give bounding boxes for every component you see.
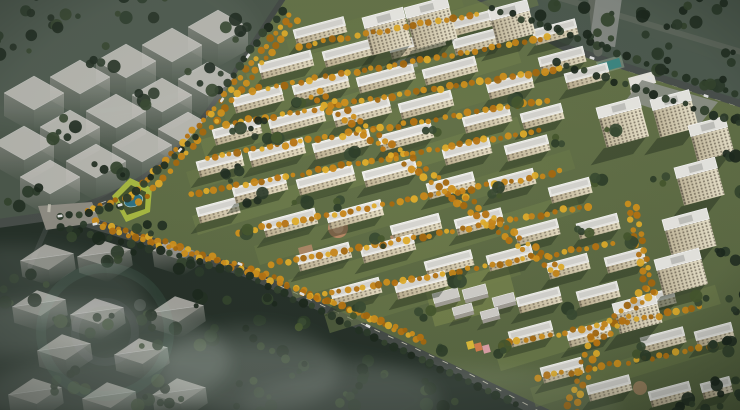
aerial-rendering-screenshot — [0, 0, 740, 410]
rendering-canvas — [0, 0, 740, 410]
vignette-overlay — [0, 0, 740, 410]
